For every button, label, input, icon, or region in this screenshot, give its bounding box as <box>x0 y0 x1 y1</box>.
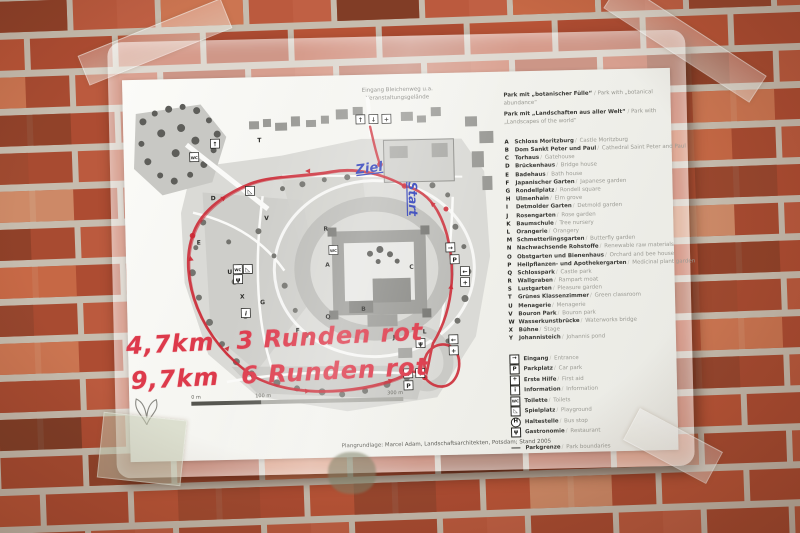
legend-item-en: Japanese garden <box>575 178 627 185</box>
legend-item-key: N <box>507 246 517 252</box>
legend-item-de: Johannisteich <box>519 335 561 342</box>
photo-of-park-map-on-brick-wall: Eingang Bleichenweg u.a. Veranstaltungsg… <box>0 0 800 533</box>
legend-header-row: Park mit „botanischer Fülle“Park with „b… <box>503 89 672 109</box>
legend-item-key: R <box>508 278 518 284</box>
legend-item-key: I <box>506 205 516 211</box>
tape-residue <box>328 452 376 494</box>
legend-item-en: Detmold garden <box>572 202 622 209</box>
legend-item-de: Torhaus <box>515 155 539 162</box>
laminated-map-sheet: Eingang Bleichenweg u.a. Veranstaltungsg… <box>107 29 695 478</box>
first-aid-icon: + <box>463 279 468 286</box>
legend-item-key: S <box>508 287 518 293</box>
scale-mid: 100 m <box>255 393 271 399</box>
legend-item-key: G <box>506 188 516 194</box>
legend-item-en: Bridge house <box>555 162 597 169</box>
legend-item-de: Wasserkunstbrücke <box>519 318 580 325</box>
restaurant-icon: ψ <box>236 277 241 284</box>
legend-item-key: A <box>504 139 514 145</box>
parking-icon: P <box>510 365 520 375</box>
legend: Park mit „botanischer Fülle“Park with „b… <box>503 89 680 454</box>
legend-item-de: Rosengarten <box>516 212 556 219</box>
legend-item-key: F <box>505 180 515 186</box>
legend-item-key: C <box>505 156 515 162</box>
first-aid-icon: + <box>451 348 456 355</box>
parking-icon: P <box>452 257 457 264</box>
legend-item-en: Orchard and bee house <box>604 250 674 258</box>
legend-item-key: L <box>506 229 516 235</box>
legend-item-key: K <box>506 221 516 227</box>
legend-item-en: Bouron park <box>557 309 596 316</box>
legend-header-de: Park mit „botanischer Fülle“ <box>503 91 592 99</box>
entrance-up-icon: ↑ <box>358 117 363 124</box>
legend-item-de: Schlosspark <box>517 269 555 276</box>
legend-item-key: D <box>505 164 515 170</box>
restaurant-icon: ψ <box>511 428 521 438</box>
legend-item-de: Badehaus <box>515 171 546 178</box>
scale-end: 300 m <box>387 390 403 396</box>
legend-item-de: Orangerie <box>516 229 547 236</box>
legend-item-en: Gatehouse <box>539 154 575 161</box>
legend-header-row: Park mit „Landschaften aus aller Welt“Pa… <box>504 108 673 128</box>
distance-2: 9,7km <box>130 363 220 395</box>
legend-item-key: H <box>506 197 516 203</box>
svg-text:Q: Q <box>325 314 330 321</box>
legend-item-de: Dom Sankt Peter und Paul <box>515 146 597 154</box>
svg-text:A: A <box>325 262 330 269</box>
legend-item-en: Cathedral Saint Peter and Paul <box>596 144 686 152</box>
start-label: Start <box>405 182 420 218</box>
legend-item-de: Detmolder Garten <box>516 203 572 210</box>
legend-item-en: Castle Moritzburg <box>574 137 628 144</box>
playground-icon: ◺ <box>248 188 253 195</box>
legend-item-en: Butterfly garden <box>584 235 635 242</box>
legend-item-key: T <box>508 295 518 301</box>
legend-item-key: V <box>508 311 518 317</box>
legend-item-en: Pleasure garden <box>552 285 602 292</box>
svg-text:R: R <box>323 226 328 233</box>
legend-item-de: Obstgarten und Bienenhaus <box>517 252 604 260</box>
legend-item-de: Nachwachsende Rohstoffe <box>517 244 599 252</box>
legend-item-en: Menagerie <box>551 301 586 308</box>
first-aid-icon: + <box>384 116 389 123</box>
svg-text:B: B <box>361 306 366 313</box>
legend-header-de: Park mit „Landschaften aus aller Welt“ <box>504 109 626 118</box>
legend-item-key: U <box>508 303 518 309</box>
legend-item-en: Rose garden <box>556 211 596 218</box>
svg-text:X: X <box>240 294 245 301</box>
map-paper: Eingang Bleichenweg u.a. Veranstaltungsg… <box>122 68 679 462</box>
scale-zero: 0 m <box>191 395 201 401</box>
legend-item-en: Renewable raw materials <box>599 242 674 250</box>
entrance-right-icon: → <box>448 245 453 252</box>
legend-item-en: Castle park <box>555 269 592 276</box>
legend-item-de: Rondellplatz <box>516 188 555 195</box>
legend-item-en: Stage <box>538 327 560 333</box>
legend-item-de: Japanischer Garten <box>515 179 574 186</box>
legend-item-key: M <box>507 237 517 243</box>
legend-item-de: Baumschule <box>516 220 554 227</box>
legend-item-de: Menagerie <box>518 302 551 309</box>
legend-item-de: Ulmenhain <box>516 196 549 203</box>
playground-icon: ◺ <box>245 266 250 273</box>
legend-item-de: Schmetterlingsgarten <box>517 236 585 244</box>
toilets-icon: WC <box>510 396 520 406</box>
first-aid-icon: + <box>510 375 520 385</box>
legend-item-en: Orangery <box>547 228 579 235</box>
toilets-icon: WC <box>330 248 337 253</box>
legend-item-key: P <box>507 262 517 268</box>
legend-item-en: Tree nursery <box>554 219 594 226</box>
legend-item-en: Rondell square <box>554 186 601 193</box>
legend-item-en: Green classroom <box>589 292 641 299</box>
legend-item-de: Wallgraben <box>518 278 553 285</box>
legend-item-de: Heilpflanzen- und Apothekergarten <box>517 260 626 268</box>
toilets-icon: WC <box>191 155 198 160</box>
legend-item-en: Rampart moat <box>553 277 598 284</box>
legend-item-en: Waterworks bridge <box>580 317 638 324</box>
legend-item-en: Bath house <box>546 170 583 177</box>
svg-text:D: D <box>211 195 216 202</box>
distance-1: 4,7km <box>125 328 215 360</box>
legend-item-de: Grünes Klassenzimmer <box>518 293 589 301</box>
legend-item-de: Bouron Park <box>518 310 556 317</box>
castle-keep <box>373 278 412 303</box>
park-boundary-icon <box>511 448 520 449</box>
legend-item-key: B <box>505 147 515 153</box>
legend-item-key: E <box>505 172 515 178</box>
bus-stop-icon: H <box>511 417 521 427</box>
legend-item-key: J <box>506 213 516 219</box>
entrance-icon: → <box>509 354 519 364</box>
legend-item-de: Schloss Moritzburg <box>514 138 574 145</box>
exit-down-icon: ↓ <box>371 117 376 124</box>
legend-item-en: Elm grove <box>549 195 582 202</box>
legend-item-de: Brückenhaus <box>515 163 555 170</box>
playground-icon: ◺ <box>510 407 520 417</box>
entrance-up-icon: ↑ <box>212 141 217 148</box>
parking-icon: P <box>406 383 411 390</box>
legend-item-key: X <box>509 328 519 334</box>
legend-item-key: O <box>507 254 517 260</box>
svg-text:C: C <box>409 264 414 271</box>
legend-item-de: Bühne <box>519 327 539 333</box>
svg-text:V: V <box>264 215 269 222</box>
tape-bottom-left <box>97 412 187 486</box>
svg-text:T: T <box>257 137 262 144</box>
svg-text:E: E <box>197 240 201 247</box>
legend-item-key: W <box>509 319 519 325</box>
entrance-left-icon: ← <box>451 337 456 344</box>
svg-text:G: G <box>260 299 265 306</box>
svg-text:U: U <box>227 269 232 276</box>
legend-item-key: Q <box>507 270 517 276</box>
legend-item-de: Lustgarten <box>518 286 552 293</box>
legend-header: Park mit „botanischer Fülle“Park with „b… <box>503 89 673 128</box>
entrance-left-icon: ← <box>462 268 467 275</box>
information-icon: i <box>510 386 520 396</box>
legend-item-en: Johannis pond <box>561 334 606 341</box>
legend-items: ASchloss MoritzburgCastle Moritzburg BDo… <box>504 136 678 344</box>
legend-item-en: Medicinal plant garden <box>626 258 695 266</box>
legend-item-key: Y <box>509 336 519 342</box>
toilets-icon: WC <box>234 267 241 272</box>
